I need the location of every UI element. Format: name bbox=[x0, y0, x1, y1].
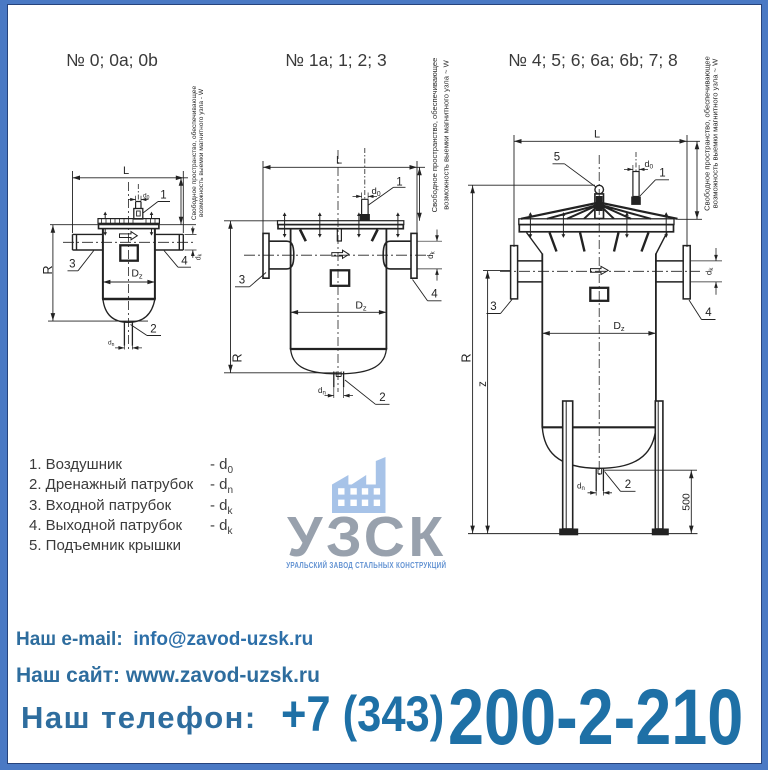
svg-text:L: L bbox=[123, 165, 129, 177]
svg-text:Свободное пространство, обеспе: Свободное пространство, обеспечивающее bbox=[430, 58, 439, 213]
svg-text:500: 500 bbox=[681, 493, 693, 511]
svg-text:2: 2 bbox=[150, 324, 156, 336]
svg-text:возможность выемки магнитного: возможность выемки магнитного узла - W bbox=[198, 88, 205, 217]
svg-text:dn: dn bbox=[577, 482, 585, 493]
svg-text:№ 1a; 1; 2; 3: № 1a; 1; 2; 3 bbox=[285, 50, 386, 70]
svg-text:L: L bbox=[336, 155, 342, 167]
svg-text:d0: d0 bbox=[372, 186, 381, 198]
svg-text:№ 4; 5; 6; 6a; 6b; 7; 8: № 4; 5; 6; 6a; 6b; 7; 8 bbox=[508, 50, 678, 70]
svg-text:1: 1 bbox=[160, 190, 166, 202]
svg-text:Dz: Dz bbox=[355, 300, 367, 313]
svg-text:3: 3 bbox=[239, 275, 245, 287]
svg-text:dk: dk bbox=[426, 250, 437, 258]
svg-text:dk: dk bbox=[196, 253, 204, 260]
svg-text:Dz: Dz bbox=[131, 268, 143, 281]
svg-text:dk: dk bbox=[705, 267, 716, 275]
svg-text:5: 5 bbox=[554, 152, 560, 164]
svg-text:возможность выемки магнитного: возможность выемки магнитного узла ~ W bbox=[442, 59, 451, 209]
svg-text:2: 2 bbox=[625, 479, 631, 491]
svg-text:4: 4 bbox=[431, 289, 438, 301]
svg-text:1: 1 bbox=[659, 168, 665, 180]
svg-text:1: 1 bbox=[396, 177, 402, 189]
svg-text:d0: d0 bbox=[645, 159, 654, 171]
svg-text:2: 2 bbox=[379, 392, 385, 404]
svg-text:3: 3 bbox=[69, 259, 75, 271]
svg-text:R: R bbox=[231, 353, 245, 362]
svg-text:dn: dn bbox=[108, 340, 115, 348]
svg-text:dn: dn bbox=[318, 386, 326, 397]
svg-text:№ 0; 0a; 0b: № 0; 0a; 0b bbox=[66, 50, 158, 70]
svg-text:возможность выемки магнитного: возможность выемки магнитного узла ~ W bbox=[711, 58, 720, 208]
svg-text:3: 3 bbox=[490, 301, 496, 313]
svg-text:4: 4 bbox=[181, 256, 188, 268]
svg-text:z: z bbox=[477, 381, 489, 387]
svg-text:R: R bbox=[460, 353, 474, 362]
svg-text:L: L bbox=[594, 129, 600, 141]
svg-text:4: 4 bbox=[705, 307, 712, 319]
svg-text:Dz: Dz bbox=[613, 320, 625, 333]
svg-text:R: R bbox=[41, 265, 55, 274]
svg-text:Свободное пространство, обеспе: Свободное пространство, обеспечивающее bbox=[190, 86, 198, 221]
